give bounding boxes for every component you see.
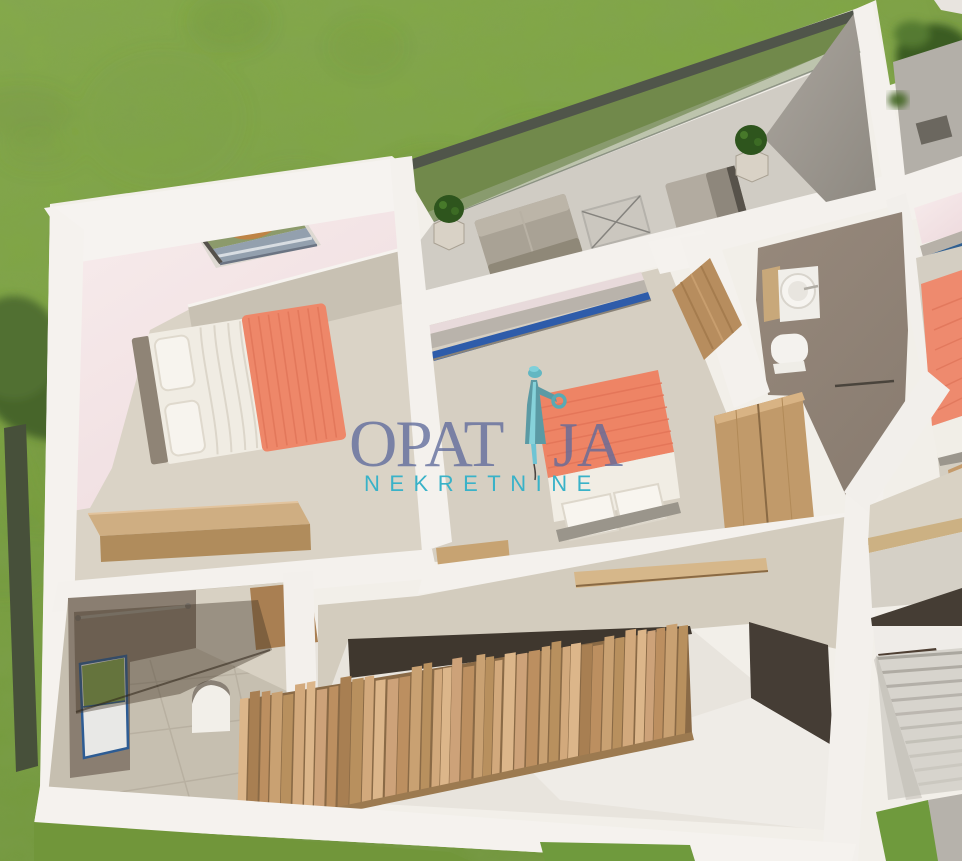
svg-text:OPAT: OPAT xyxy=(349,407,503,481)
svg-text:NEKRETNINE: NEKRETNINE xyxy=(364,471,601,496)
svg-text:JA: JA xyxy=(553,409,623,480)
